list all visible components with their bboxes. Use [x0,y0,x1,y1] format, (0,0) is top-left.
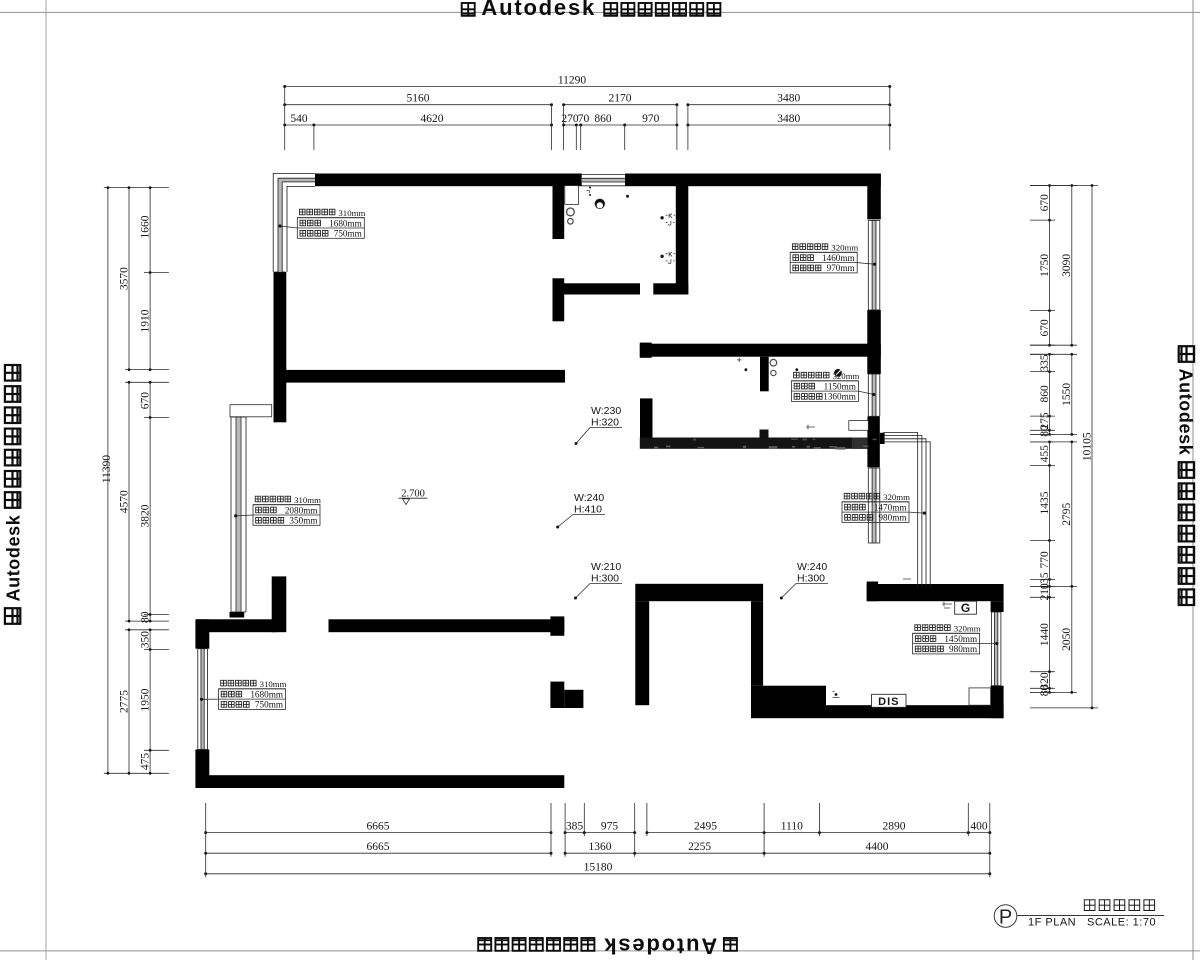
svg-text:3570: 3570 [118,267,130,290]
svg-text:4620: 4620 [421,113,444,125]
svg-text:320mm: 320mm [883,492,910,502]
svg-text:540: 540 [290,113,308,125]
svg-text:1460mm: 1460mm [822,253,855,263]
svg-text:2255: 2255 [688,841,711,853]
svg-text:2495: 2495 [694,820,717,832]
svg-text:1360: 1360 [589,841,612,853]
svg-text:400: 400 [970,820,988,832]
svg-text:3480: 3480 [777,113,800,125]
svg-text:H:300: H:300 [797,573,825,585]
svg-text:670: 670 [1039,194,1051,212]
svg-text:1150mm: 1150mm [824,381,856,391]
svg-text:350mm: 350mm [289,516,317,526]
svg-text:970: 970 [642,113,660,125]
svg-text:80: 80 [140,611,152,623]
svg-text:670: 670 [1039,319,1051,337]
svg-text:5160: 5160 [407,93,430,105]
svg-text:1435: 1435 [1039,491,1051,514]
svg-text:6665: 6665 [367,820,390,832]
svg-text:310mm: 310mm [260,679,287,689]
svg-text:H:410: H:410 [574,504,602,516]
svg-text:80: 80 [1039,425,1051,437]
svg-text:2795: 2795 [1061,502,1073,525]
svg-text:11390: 11390 [101,455,113,484]
svg-text:70: 70 [578,113,590,125]
svg-text:SCALE: 1:70: SCALE: 1:70 [1087,917,1156,929]
svg-text:2050: 2050 [1061,628,1073,651]
svg-text:1440: 1440 [1039,623,1051,646]
svg-text:3480: 3480 [777,93,800,105]
svg-text:1450mm: 1450mm [944,634,977,644]
svg-text:15180: 15180 [584,862,613,874]
svg-text:385: 385 [566,820,584,832]
svg-text:270: 270 [561,113,579,125]
svg-text:970mm: 970mm [827,263,855,273]
svg-text:3820: 3820 [140,504,152,527]
svg-text:80: 80 [1039,685,1051,697]
svg-text:1470mm: 1470mm [874,502,907,512]
svg-text:975: 975 [601,820,619,832]
svg-text:335: 335 [1039,354,1051,372]
svg-text:1550: 1550 [1061,383,1073,406]
svg-text:H:320: H:320 [591,417,619,429]
svg-text:860: 860 [1039,385,1051,403]
svg-text:Autodesk: Autodesk [603,934,718,959]
svg-text:1950: 1950 [140,688,152,711]
svg-text:320mm: 320mm [833,371,860,381]
svg-text:455: 455 [1039,445,1051,463]
svg-text:1910: 1910 [140,309,152,332]
svg-text:2080mm: 2080mm [285,505,318,515]
svg-text:6665: 6665 [367,841,390,853]
svg-text:G: G [961,601,970,615]
svg-text:670: 670 [140,392,152,410]
svg-text:4400: 4400 [866,841,889,853]
svg-text:310mm: 310mm [338,208,365,218]
svg-text:10105: 10105 [1081,432,1093,461]
svg-text:770: 770 [1039,551,1051,569]
svg-text:3090: 3090 [1061,254,1073,277]
svg-text:2890: 2890 [883,820,906,832]
svg-text:W:230: W:230 [591,405,621,417]
svg-text:750mm: 750mm [334,229,362,239]
svg-text:DIS: DIS [878,696,899,708]
svg-text:2170: 2170 [609,93,632,105]
svg-text:W:210: W:210 [591,561,621,573]
svg-text:Autodesk: Autodesk [1175,369,1195,456]
svg-text:Autodesk: Autodesk [481,0,596,20]
svg-text:1110: 1110 [781,820,803,832]
svg-text:980mm: 980mm [949,644,977,654]
svg-text:P: P [999,907,1012,929]
svg-text:W:240: W:240 [797,561,827,573]
svg-text:350: 350 [140,631,152,649]
svg-text:1750: 1750 [1039,254,1051,277]
svg-text:475: 475 [140,753,152,771]
svg-text:11290: 11290 [558,75,587,87]
svg-text:W:240: W:240 [574,492,604,504]
svg-text:1360mm: 1360mm [823,392,856,402]
svg-text:Autodesk: Autodesk [4,514,24,601]
svg-text:2775: 2775 [118,690,130,713]
svg-text:1660: 1660 [140,215,152,238]
svg-text:320mm: 320mm [831,243,858,253]
svg-text:310mm: 310mm [294,495,321,505]
svg-text:1F PLAN: 1F PLAN [1028,917,1076,929]
svg-text:1680mm: 1680mm [250,689,283,699]
svg-text:320mm: 320mm [954,624,981,634]
svg-text:860: 860 [594,113,612,125]
svg-text:4570: 4570 [118,490,130,513]
svg-text:1680mm: 1680mm [329,218,362,228]
svg-text:210: 210 [1039,583,1051,601]
svg-text:H:300: H:300 [591,573,619,585]
svg-text:980mm: 980mm [878,513,906,523]
svg-text:750mm: 750mm [255,700,283,710]
